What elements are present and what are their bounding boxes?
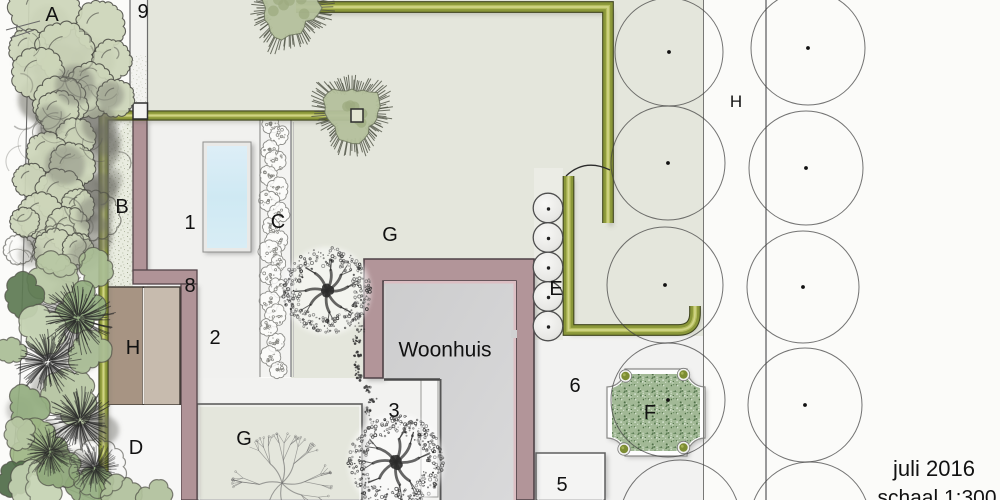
svg-text:G: G — [236, 428, 252, 450]
svg-text:E: E — [549, 278, 562, 300]
svg-text:B: B — [115, 196, 128, 218]
svg-text:6: 6 — [569, 375, 580, 397]
svg-text:C: C — [271, 211, 285, 233]
svg-text:8: 8 — [184, 275, 195, 297]
svg-text:H: H — [126, 337, 140, 359]
svg-text:5: 5 — [556, 474, 567, 496]
svg-text:D: D — [129, 437, 143, 459]
svg-text:schaal 1:300: schaal 1:300 — [877, 487, 996, 500]
svg-text:Woonhuis: Woonhuis — [398, 339, 491, 362]
svg-text:juli 2016: juli 2016 — [892, 456, 975, 481]
svg-text:F: F — [644, 402, 656, 424]
svg-text:1: 1 — [184, 212, 195, 234]
svg-text:H: H — [730, 92, 742, 111]
svg-text:3: 3 — [388, 400, 399, 422]
svg-text:A: A — [45, 4, 59, 26]
svg-text:2: 2 — [209, 327, 220, 349]
svg-text:G: G — [382, 224, 398, 246]
svg-text:9: 9 — [137, 1, 148, 23]
